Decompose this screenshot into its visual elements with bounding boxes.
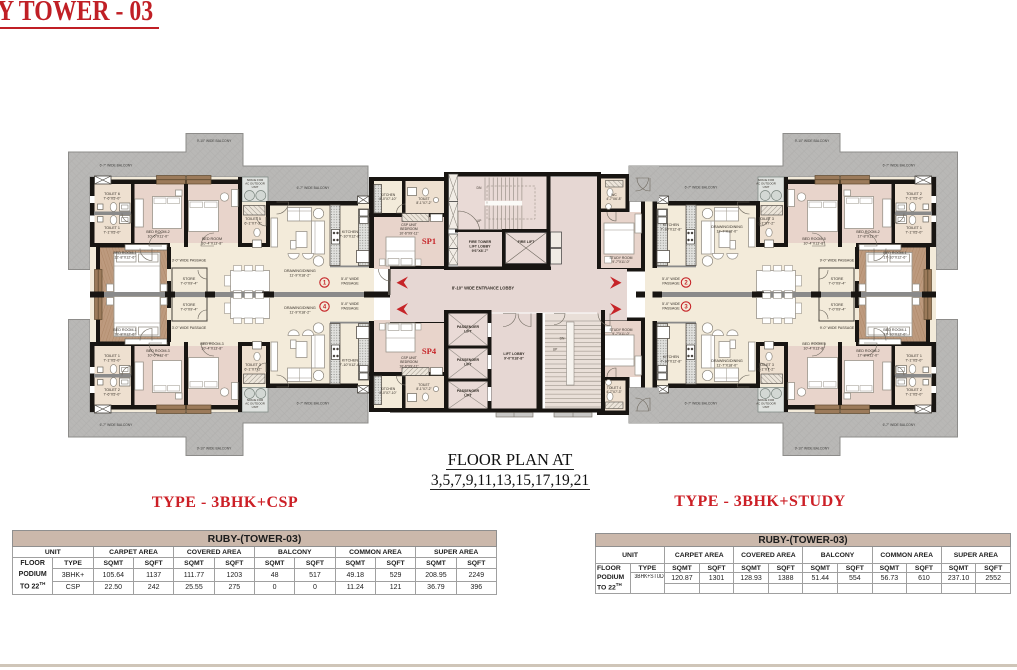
svg-text:6'-1"X7'-2": 6'-1"X7'-2" xyxy=(244,368,262,372)
svg-text:9'-0"X18'-8": 9'-0"X18'-8" xyxy=(504,356,524,360)
svg-text:10'-6"X9'-11": 10'-6"X9'-11" xyxy=(399,231,419,235)
svg-text:17'-10"X12'-6": 17'-10"X12'-6" xyxy=(883,256,907,260)
svg-text:7'-6"X5'-0": 7'-6"X5'-0" xyxy=(103,197,121,201)
svg-text:KITCHEN: KITCHEN xyxy=(342,230,359,234)
svg-text:DN: DN xyxy=(560,337,565,341)
svg-text:UP: UP xyxy=(477,219,482,223)
svg-text:10'-4"X13'-8": 10'-4"X13'-8" xyxy=(803,347,825,351)
svg-text:9'-0" WIDE PASSAGE: 9'-0" WIDE PASSAGE xyxy=(820,326,855,330)
svg-text:KITCHEN: KITCHEN xyxy=(663,355,680,359)
svg-text:11'-7"X18'-0": 11'-7"X18'-0" xyxy=(717,364,739,368)
svg-text:8'-1"X7'-2": 8'-1"X7'-2" xyxy=(416,387,432,391)
svg-text:LIFT LOBBY: LIFT LOBBY xyxy=(503,352,525,356)
svg-text:LIFT: LIFT xyxy=(464,329,472,333)
svg-text:11'-9"X18'-2": 11'-9"X18'-2" xyxy=(290,274,312,278)
svg-text:UP: UP xyxy=(553,348,558,352)
svg-text:DRAWING/DINING: DRAWING/DINING xyxy=(284,269,316,273)
svg-text:3'-0" WIDE PASSAGE: 3'-0" WIDE PASSAGE xyxy=(172,259,207,263)
svg-text:BED ROOM-1: BED ROOM-1 xyxy=(113,251,136,255)
svg-text:5'-0" WIDE: 5'-0" WIDE xyxy=(341,302,360,306)
svg-text:6'-1"X7'-2": 6'-1"X7'-2" xyxy=(757,368,775,372)
svg-text:7'-1"X5'-0": 7'-1"X5'-0" xyxy=(905,393,923,397)
svg-text:9'-10" WIDE BALCONY: 9'-10" WIDE BALCONY xyxy=(197,447,232,451)
svg-text:6'-7" WIDE BALCONY: 6'-7" WIDE BALCONY xyxy=(685,402,719,406)
svg-text:9'-0" WIDE PASSAGE: 9'-0" WIDE PASSAGE xyxy=(820,259,855,263)
svg-text:TOILET 5: TOILET 5 xyxy=(245,217,261,221)
svg-text:FIRE LIFT: FIRE LIFT xyxy=(518,240,536,244)
svg-text:7'-0"X9'-4": 7'-0"X9'-4" xyxy=(180,282,198,286)
svg-text:7'-10"X12'-8": 7'-10"X12'-8" xyxy=(339,363,361,367)
svg-text:10'-6"X11'-0": 10'-6"X11'-0" xyxy=(148,354,170,358)
svg-text:BED ROOM-5: BED ROOM-5 xyxy=(802,237,825,241)
svg-text:PASSENGER: PASSENGER xyxy=(457,325,480,329)
svg-text:PASSAGE: PASSAGE xyxy=(341,282,359,286)
svg-text:UNIT: UNIT xyxy=(252,185,259,189)
svg-text:9'6"X8'-7": 9'6"X8'-7" xyxy=(472,249,489,253)
svg-text:6'-7" WIDE BALCONY: 6'-7" WIDE BALCONY xyxy=(297,402,331,406)
svg-text:7'-1"X5'-0": 7'-1"X5'-0" xyxy=(905,359,923,363)
svg-text:7'-1"X5'-0": 7'-1"X5'-0" xyxy=(905,231,923,235)
svg-text:BED ROOM: BED ROOM xyxy=(202,237,222,241)
svg-text:10'-6"X11'-0": 10'-6"X11'-0" xyxy=(148,235,170,239)
svg-text:STORE: STORE xyxy=(183,303,196,307)
svg-text:5'-0" WIDE: 5'-0" WIDE xyxy=(341,277,360,281)
svg-text:6'-7" WIDE BALCONY: 6'-7" WIDE BALCONY xyxy=(685,186,719,190)
svg-text:7'-1"X5'-0": 7'-1"X5'-0" xyxy=(103,359,121,363)
svg-text:DRAWING/DINING: DRAWING/DINING xyxy=(711,359,743,363)
svg-text:10'-4"X13'-8": 10'-4"X13'-8" xyxy=(803,242,825,246)
svg-text:TOILET 1: TOILET 1 xyxy=(906,226,922,230)
svg-text:BED ROOM-1: BED ROOM-1 xyxy=(883,251,906,255)
svg-text:TOILET 6: TOILET 6 xyxy=(104,192,120,196)
svg-text:STORE: STORE xyxy=(183,277,196,281)
svg-text:12'-8"X12'-6": 12'-8"X12'-6" xyxy=(114,256,136,260)
svg-text:BED ROOM-1: BED ROOM-1 xyxy=(113,328,136,332)
svg-text:UNIT: UNIT xyxy=(763,185,770,189)
svg-text:UNIT: UNIT xyxy=(763,405,770,409)
svg-text:BED ROOM-1: BED ROOM-1 xyxy=(883,328,906,332)
svg-text:PASSAGE: PASSAGE xyxy=(341,307,359,311)
svg-text:BED ROOM-5: BED ROOM-5 xyxy=(802,342,825,346)
svg-text:DRAWING/DINING: DRAWING/DINING xyxy=(284,306,316,310)
svg-text:10'-4"X13'-8": 10'-4"X13'-8" xyxy=(201,347,223,351)
svg-text:5'-0" WIDE: 5'-0" WIDE xyxy=(662,277,681,281)
svg-text:BED ROOM-2: BED ROOM-2 xyxy=(856,349,879,353)
svg-text:STORE: STORE xyxy=(831,277,844,281)
svg-text:10'-4"X13'-8": 10'-4"X13'-8" xyxy=(201,242,223,246)
svg-text:12'-8"X12'-6": 12'-8"X12'-6" xyxy=(114,333,136,337)
svg-text:UNIT: UNIT xyxy=(252,405,259,409)
svg-text:TOILET 2: TOILET 2 xyxy=(906,388,922,392)
svg-text:6'-7" WIDE BALCONY: 6'-7" WIDE BALCONY xyxy=(100,423,134,427)
svg-text:TOILET 3: TOILET 3 xyxy=(758,217,774,221)
svg-text:FIRE TOWER: FIRE TOWER xyxy=(469,240,492,244)
svg-text:BED ROOM-3: BED ROOM-3 xyxy=(200,342,223,346)
svg-text:4'-7"X7'-3": 4'-7"X7'-3" xyxy=(606,390,622,394)
svg-text:TOILET 2: TOILET 2 xyxy=(906,192,922,196)
svg-text:6'-1"X7'-2": 6'-1"X7'-2" xyxy=(244,222,262,226)
svg-text:4'-7"X6'-8": 4'-7"X6'-8" xyxy=(606,197,622,201)
svg-text:8'-0"X7'-10": 8'-0"X7'-10" xyxy=(379,197,397,201)
svg-text:9'-7"X11'-0": 9'-7"X11'-0" xyxy=(612,260,630,264)
svg-text:7'-1"X5'-0": 7'-1"X5'-0" xyxy=(905,197,923,201)
svg-text:8'-0"X7'-10": 8'-0"X7'-10" xyxy=(379,391,397,395)
svg-text:KITCHEN: KITCHEN xyxy=(342,359,359,363)
svg-text:PASSENGER: PASSENGER xyxy=(457,358,480,362)
svg-text:STORE: STORE xyxy=(831,303,844,307)
svg-text:SP4: SP4 xyxy=(422,346,437,356)
svg-text:11'-7"X18'-0": 11'-7"X18'-0" xyxy=(717,230,739,234)
svg-text:LIFT LOBBY: LIFT LOBBY xyxy=(469,244,491,248)
svg-text:5'-0" WIDE: 5'-0" WIDE xyxy=(662,302,681,306)
svg-text:TOILET 1: TOILET 1 xyxy=(906,354,922,358)
svg-text:9'-10" WIDE BALCONY: 9'-10" WIDE BALCONY xyxy=(795,139,830,143)
svg-text:7'-1"X5'-0": 7'-1"X5'-0" xyxy=(103,231,121,235)
svg-text:LIFT: LIFT xyxy=(464,393,472,397)
svg-text:6'-7" WIDE BALCONY: 6'-7" WIDE BALCONY xyxy=(297,186,331,190)
svg-text:9'-10" WIDE BALCONY: 9'-10" WIDE BALCONY xyxy=(795,447,830,451)
svg-text:9'-10" WIDE BALCONY: 9'-10" WIDE BALCONY xyxy=(197,139,232,143)
svg-text:DRAWING/DINING: DRAWING/DINING xyxy=(711,225,743,229)
svg-text:PASSENGER: PASSENGER xyxy=(457,389,480,393)
svg-text:KITCHEN: KITCHEN xyxy=(663,223,680,227)
svg-text:BED ROOM-2: BED ROOM-2 xyxy=(856,230,879,234)
svg-text:17'-8"X11'-0": 17'-8"X11'-0" xyxy=(858,235,880,239)
svg-text:BED ROOM-2: BED ROOM-2 xyxy=(146,230,169,234)
svg-text:7'-0"X9'-4": 7'-0"X9'-4" xyxy=(828,282,846,286)
svg-text:6'-7" WIDE BALCONY: 6'-7" WIDE BALCONY xyxy=(100,164,134,168)
svg-text:TOILET 3: TOILET 3 xyxy=(245,363,261,367)
svg-text:7'-0"X9'-4": 7'-0"X9'-4" xyxy=(828,308,846,312)
svg-text:TOILET 1: TOILET 1 xyxy=(104,226,120,230)
svg-text:6'-7" WIDE BALCONY: 6'-7" WIDE BALCONY xyxy=(883,423,917,427)
svg-text:11'-9"X18'-2": 11'-9"X18'-2" xyxy=(290,311,312,315)
svg-text:7'-10"X12'-8": 7'-10"X12'-8" xyxy=(660,228,682,232)
svg-text:7'-10"X12'-8": 7'-10"X12'-8" xyxy=(660,360,682,364)
svg-text:PASSAGE: PASSAGE xyxy=(662,282,680,286)
svg-text:3'-0" WIDE PASSAGE: 3'-0" WIDE PASSAGE xyxy=(172,326,207,330)
svg-text:7'-0"X9'-4": 7'-0"X9'-4" xyxy=(180,308,198,312)
svg-text:SP1: SP1 xyxy=(422,236,436,246)
svg-text:TOILET 3: TOILET 3 xyxy=(758,363,774,367)
svg-text:TOILET 2: TOILET 2 xyxy=(104,388,120,392)
svg-text:6'-7" WIDE BALCONY: 6'-7" WIDE BALCONY xyxy=(883,164,917,168)
svg-text:7'-6"X5'-0": 7'-6"X5'-0" xyxy=(103,393,121,397)
svg-text:8'-1"X7'-2": 8'-1"X7'-2" xyxy=(416,201,432,205)
svg-text:8'-10" WIDE ENTRANCE LOBBY: 8'-10" WIDE ENTRANCE LOBBY xyxy=(452,286,515,291)
svg-text:LIFT: LIFT xyxy=(464,362,472,366)
svg-text:17'-8"X11'-0": 17'-8"X11'-0" xyxy=(858,354,880,358)
svg-text:TOILET 1: TOILET 1 xyxy=(104,354,120,358)
svg-text:DN: DN xyxy=(477,186,482,190)
svg-text:17'-10"X12'-6": 17'-10"X12'-6" xyxy=(883,333,907,337)
svg-text:BED ROOM-3: BED ROOM-3 xyxy=(146,349,169,353)
svg-text:7'-10"X12'-8": 7'-10"X12'-8" xyxy=(339,235,361,239)
svg-text:9'-7"X11'-0": 9'-7"X11'-0" xyxy=(612,332,630,336)
svg-text:PASSAGE: PASSAGE xyxy=(662,307,680,311)
svg-text:6'-1"X7'-2": 6'-1"X7'-2" xyxy=(757,222,775,226)
svg-text:10'-6"X9'-11": 10'-6"X9'-11" xyxy=(399,364,419,368)
